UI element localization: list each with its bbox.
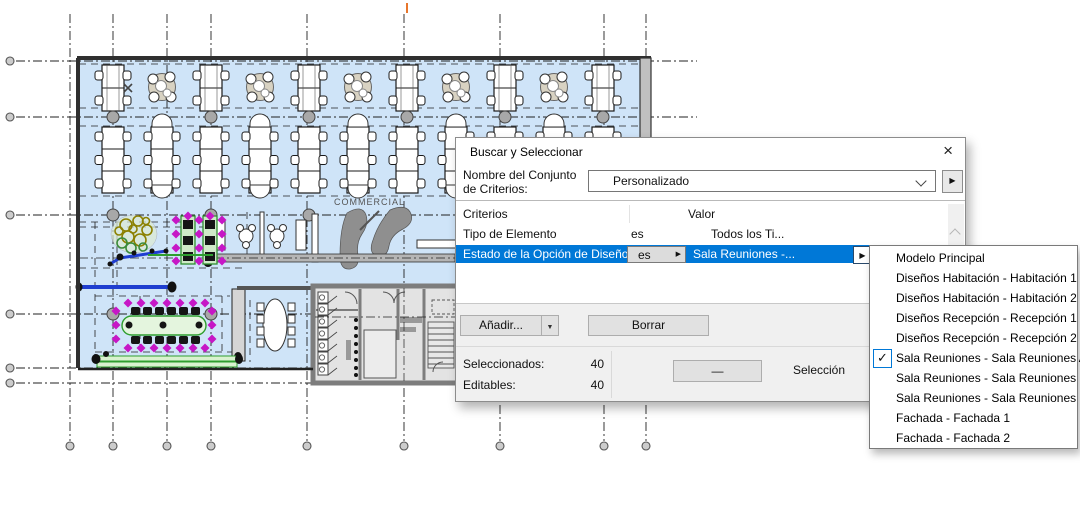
menu-item-sala-reuniones-b[interactable]: Sala Reuniones - Sala Reuniones B — [870, 368, 1077, 388]
selection-label: Selección — [793, 363, 845, 377]
criteria-set-value: Personalizado — [613, 174, 689, 188]
plant — [111, 215, 157, 253]
menu-item-habitacion-2[interactable]: Diseños Habitación - Habitación 2 — [870, 288, 1077, 308]
menu-item-habitacion-1[interactable]: Diseños Habitación - Habitación 1 — [870, 268, 1077, 288]
criteria-set-label: Nombre del Conjunto de Criterios: — [463, 168, 576, 196]
divider — [456, 200, 965, 201]
scroll-up-icon[interactable] — [949, 228, 960, 239]
col-valor: Valor — [688, 207, 715, 221]
operator-dropdown-button[interactable]: es ▶ — [627, 246, 686, 263]
right-triangle-icon: ▶ — [859, 251, 865, 260]
column-divider — [629, 205, 630, 223]
editable-count-label: Editables: — [463, 378, 516, 392]
menu-item-modelo-principal[interactable]: Modelo Principal — [870, 248, 1077, 268]
col-criterios: Criterios — [463, 207, 508, 221]
divider — [611, 351, 612, 398]
criteria-table-header: Criterios Valor — [456, 204, 950, 224]
editable-count-value: 40 — [556, 378, 604, 392]
selected-count-label: Seleccionados: — [463, 357, 544, 371]
minus-button[interactable]: — — [673, 360, 762, 382]
dialog-title: Buscar y Seleccionar — [470, 145, 583, 159]
criteria-row-tipo-elemento[interactable]: Tipo de Elemento es Todos los Ti... — [456, 224, 950, 245]
menu-item-fachada-1[interactable]: Fachada - Fachada 1 — [870, 408, 1077, 428]
commercial-zone-label: COMMERCIAL — [334, 197, 405, 207]
menu-item-recepcion-1[interactable]: Diseños Recepción - Recepción 1 — [870, 308, 1077, 328]
core-restrooms-stairs — [313, 286, 459, 383]
menu-item-sala-reuniones-a[interactable]: ✓ Sala Reuniones - Sala Reuniones A — [870, 348, 1077, 368]
criteria-set-menu-button[interactable]: ▶ — [942, 170, 963, 193]
chevron-down-icon — [915, 175, 926, 186]
add-button[interactable]: Añadir... — [460, 315, 541, 336]
menu-item-fachada-2[interactable]: Fachada - Fachada 2 — [870, 428, 1077, 448]
dialog-titlebar[interactable]: Buscar y Seleccionar × — [456, 138, 965, 166]
check-icon: ✓ — [873, 349, 892, 368]
criteria-set-combobox[interactable]: Personalizado — [588, 170, 936, 192]
menu-item-sala-reuniones-c[interactable]: Sala Reuniones - Sala Reuniones C — [870, 388, 1077, 408]
design-option-menu: Modelo Principal Diseños Habitación - Ha… — [869, 245, 1078, 449]
right-triangle-icon: ▶ — [676, 250, 681, 258]
right-triangle-icon: ▶ — [949, 176, 955, 185]
menu-item-recepcion-2[interactable]: Diseños Recepción - Recepción 2 — [870, 328, 1077, 348]
close-icon[interactable]: × — [943, 141, 953, 161]
selected-count-value: 40 — [556, 357, 604, 371]
delete-button[interactable]: Borrar — [588, 315, 709, 336]
down-triangle-icon: ▼ — [547, 324, 554, 331]
add-dropdown-button[interactable]: ▼ — [541, 315, 559, 336]
